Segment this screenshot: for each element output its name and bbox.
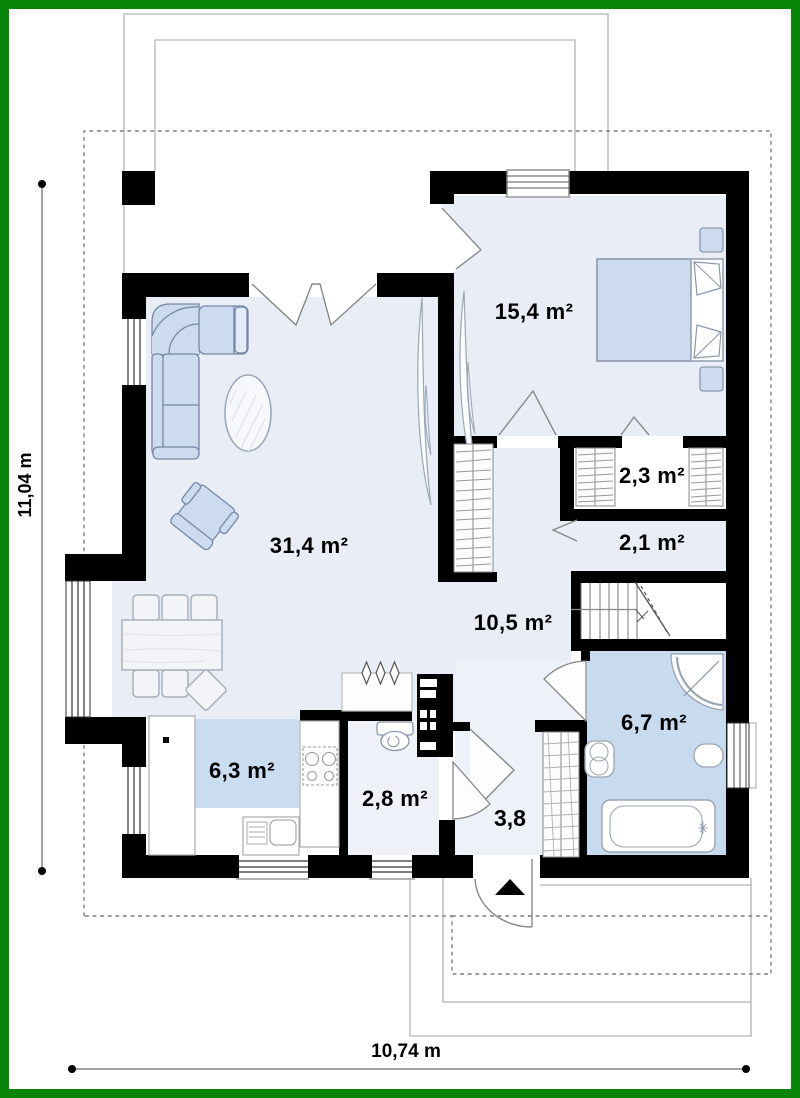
svg-text:6,7 m²: 6,7 m² <box>621 710 687 735</box>
svg-text:10,5 m²: 10,5 m² <box>474 610 553 635</box>
svg-text:31,4 m²: 31,4 m² <box>270 533 349 558</box>
svg-text:6,3 m²: 6,3 m² <box>209 758 275 783</box>
svg-text:15,4 m²: 15,4 m² <box>495 299 574 324</box>
svg-text:2,3 m²: 2,3 m² <box>619 463 685 488</box>
svg-text:2,8 m²: 2,8 m² <box>362 786 428 811</box>
svg-text:10,74 m: 10,74 m <box>371 1041 441 1062</box>
svg-text:3,8: 3,8 <box>494 805 526 831</box>
svg-text:11,04 m: 11,04 m <box>15 452 35 517</box>
svg-text:2,1 m²: 2,1 m² <box>619 530 685 555</box>
